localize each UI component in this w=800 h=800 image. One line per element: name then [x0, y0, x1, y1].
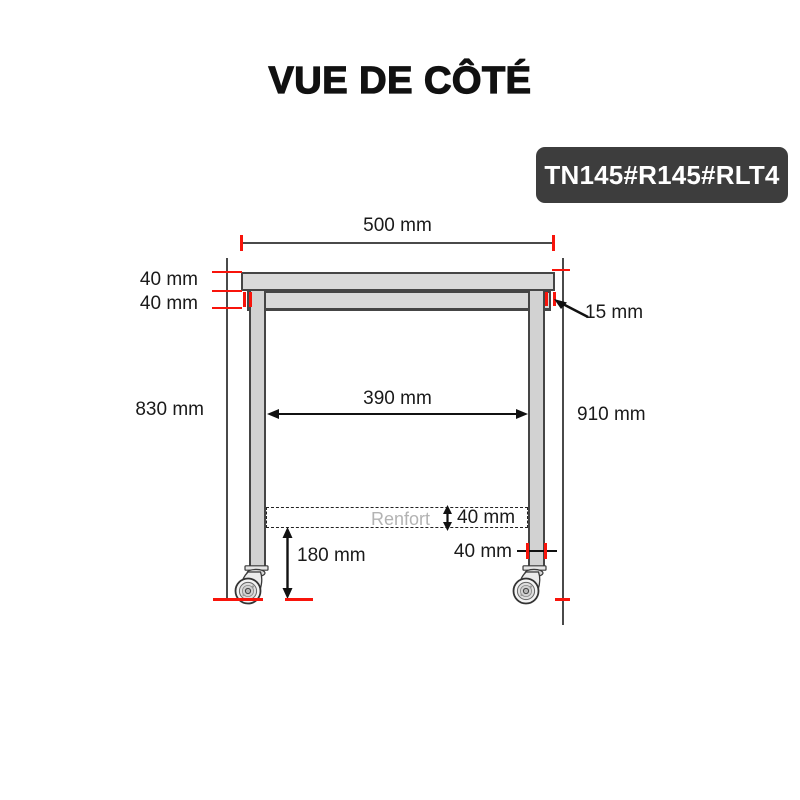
dim-label-right-height: 910 mm [577, 405, 646, 425]
tick-top-thickness-b [212, 290, 242, 293]
dim-label-caster-clearance: 180 mm [297, 546, 366, 566]
dim-label-left-height: 830 mm [118, 400, 204, 420]
extension-line-left [226, 258, 228, 600]
page-title: VUE DE CÔTÉ [0, 60, 800, 103]
tick-leg-inset-right-a [545, 292, 548, 306]
tick-leg-inset-left-a [243, 292, 246, 307]
dim-tick-top-left [240, 235, 243, 251]
dim-line-top-width [241, 242, 554, 244]
tick-top-thickness-a [212, 271, 242, 274]
dim-label-top-thickness: 40 mm [118, 270, 198, 290]
dim-arrow-caster-clearance [281, 527, 294, 599]
table-frame-rail [247, 291, 551, 311]
caster-wheel-right-icon [511, 565, 549, 605]
dim-arrow-reinforcement-height [441, 505, 454, 531]
dim-line-leg-width [517, 550, 557, 552]
tick-frame-bottom [212, 307, 242, 310]
ground-mark-left [213, 598, 263, 601]
dim-label-leg-inset: 15 mm [585, 303, 643, 323]
dim-label-frame-height: 40 mm [118, 294, 198, 314]
diagram-canvas: VUE DE CÔTÉ TN145#R145#RLT4 500 mm 40 mm… [0, 0, 800, 800]
tick-leg-width-a [526, 543, 529, 559]
dim-arrow-inner-width [267, 406, 528, 422]
ground-mark-right [555, 598, 570, 601]
table-leg-left [249, 291, 266, 567]
leader-arrow-15mm [550, 296, 590, 320]
table-leg-right [528, 291, 545, 567]
table-top [241, 272, 555, 291]
dim-label-reinforcement-height: 40 mm [457, 508, 515, 528]
tick-leg-width-b [544, 543, 547, 559]
dim-label-leg-width: 40 mm [404, 542, 512, 562]
dim-tick-top-right [552, 235, 555, 251]
dim-label-top-width: 500 mm [241, 216, 554, 236]
product-code-badge: TN145#R145#RLT4 [536, 147, 788, 203]
tick-right-top [552, 269, 570, 272]
tick-leg-inset-left-b [249, 292, 252, 307]
ground-mark-center [285, 598, 313, 601]
reinforcement-label: Renfort [371, 509, 430, 529]
